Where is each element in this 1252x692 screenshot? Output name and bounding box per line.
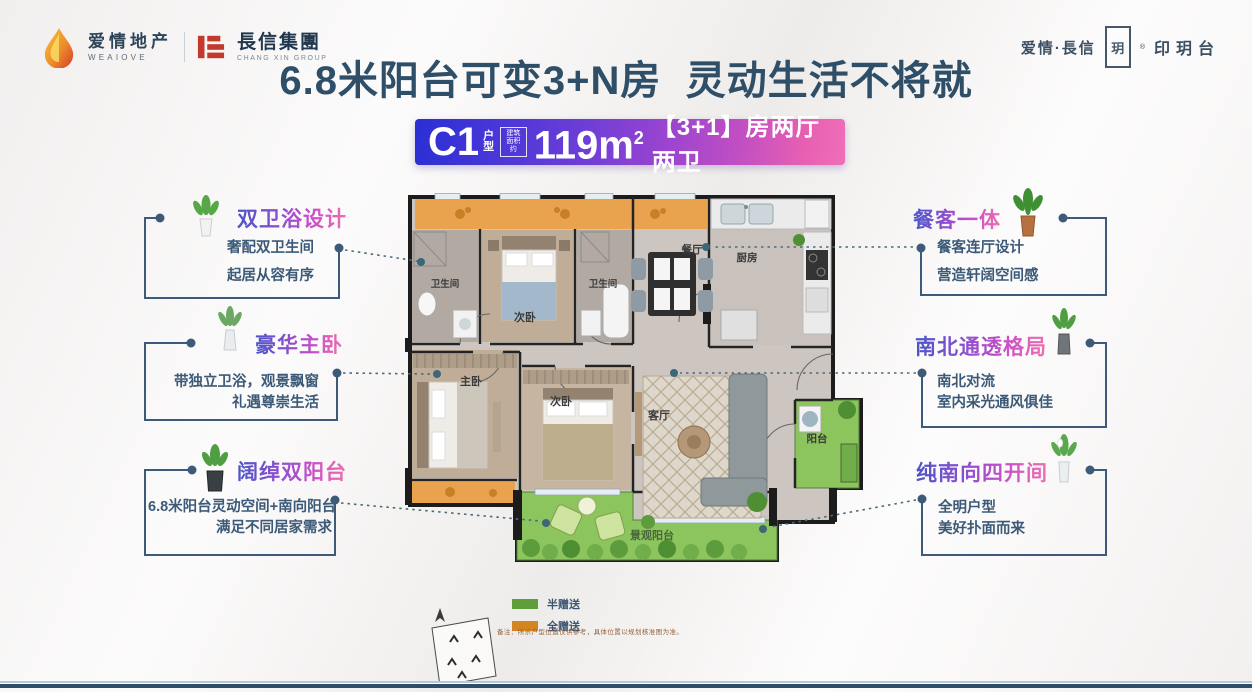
area-value: 119m2: [534, 118, 644, 165]
half-gift-label: 半赠送: [547, 596, 580, 612]
callout-title-master: 豪华主卧: [255, 329, 343, 359]
room-label-living: 客厅: [647, 408, 670, 422]
site-map: [426, 608, 508, 690]
room-label-bath-left: 卫生间: [431, 278, 460, 290]
unit-suffix: 户 型: [483, 131, 494, 153]
disclaimer-note: 备注：所示户型位置仅供参考，具体位置以规划核准图为准。: [497, 626, 683, 636]
area-note-line1: 建筑: [504, 130, 523, 138]
room-label-balcony: 阳台: [807, 432, 828, 445]
floor-plan: 卫生间 次卧 卫生间 餐厅 厨房 主卧 次卧 客厅 阳台 景观阳台: [405, 192, 865, 600]
callout-line: 奢配双卫生间: [158, 241, 314, 256]
north-arrow-icon: [435, 608, 445, 622]
plant-icon: [198, 444, 232, 494]
plant-icon: [1048, 308, 1080, 358]
callout-line: 营造轩阔空间感: [937, 269, 1039, 284]
callout-line: 餐客连厅设计: [937, 241, 1024, 256]
callout-line: 全明户型: [938, 501, 996, 516]
plant-icon: [214, 306, 246, 352]
unit-code: C1: [428, 122, 479, 162]
gift-strip-bottom: [412, 482, 515, 503]
half-gift-swatch: [512, 599, 538, 609]
bottom-rule: [0, 681, 1252, 688]
callout-line: 起居从容有序: [158, 269, 314, 284]
plant-icon: [1048, 434, 1080, 486]
callout-line: 带独立卫浴，观景飘窗: [147, 375, 319, 390]
layout-spec: 【3+1】房两厅两卫: [652, 107, 845, 177]
unit-suffix-bottom: 型: [483, 142, 494, 153]
area-note-line2: 面积约: [504, 138, 523, 154]
room-label-bedroom-mid: 次卧: [550, 394, 572, 408]
callout-title-dual-bath: 双卫浴设计: [237, 203, 347, 233]
callout-line: 6.8米阳台灵动空间+南向阳台: [148, 500, 332, 515]
callout-title-dual-balcony: 阔绰双阳台: [237, 456, 347, 486]
callout-title-north-south: 南北通透格局: [915, 331, 1047, 361]
area-superscript: 2: [634, 128, 644, 148]
callout-line: 美好扑面而来: [938, 522, 1025, 537]
callout-line: 南北对流: [937, 375, 995, 390]
room-label-bedroom-top: 次卧: [514, 310, 536, 324]
callout-title-south-facing: 纯南向四开间: [916, 457, 1048, 487]
callout-title-dining-living: 餐客一体: [913, 204, 1001, 234]
plant-icon: [1010, 188, 1046, 238]
callout-line: 室内采光通风俱佳: [937, 396, 1053, 411]
plant-icon: [190, 194, 222, 238]
room-label-dining: 餐厅: [681, 243, 703, 256]
unit-badge: C1 户 型 建筑 面积约 119m2 【3+1】房两厅两卫: [415, 119, 845, 165]
callout-line: 礼遇尊崇生活: [147, 396, 319, 411]
room-label-view-balcony: 景观阳台: [629, 528, 674, 542]
room-label-bath-right: 卫生间: [589, 278, 618, 290]
living-furniture: [635, 374, 767, 529]
area-note-box: 建筑 面积约: [500, 127, 527, 157]
page-title: 6.8米阳台可变3+N房 灵动生活不将就: [0, 48, 1252, 106]
room-label-master: 主卧: [460, 374, 482, 388]
room-label-kitchen: 厨房: [737, 251, 758, 264]
callout-line: 满足不同居家需求: [148, 521, 332, 536]
